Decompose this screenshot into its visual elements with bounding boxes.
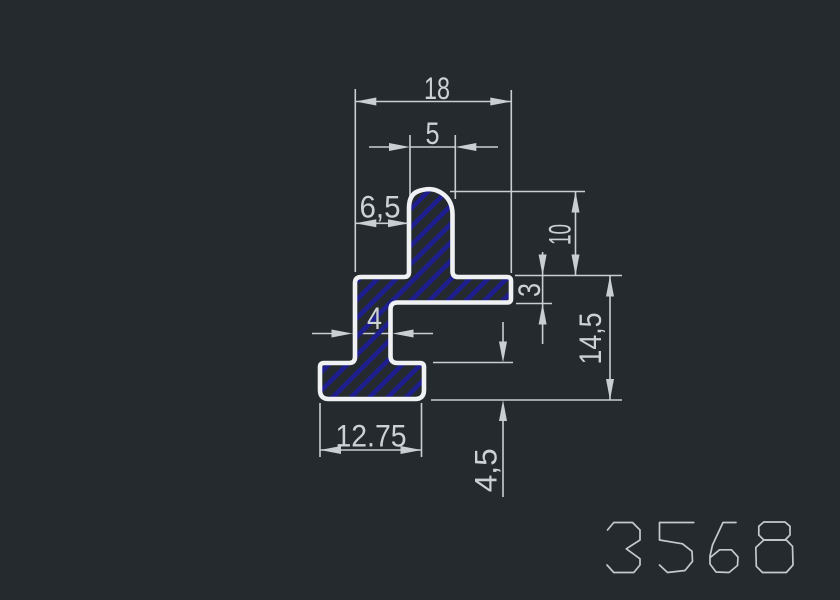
svg-text:4: 4: [367, 300, 382, 336]
svg-text:14,5: 14,5: [572, 313, 608, 365]
svg-text:3: 3: [511, 283, 547, 297]
svg-text:6,5: 6,5: [360, 189, 401, 225]
svg-text:18: 18: [424, 70, 450, 106]
svg-text:5: 5: [426, 115, 440, 151]
svg-text:10: 10: [542, 224, 578, 245]
svg-text:12.75: 12.75: [336, 418, 407, 454]
svg-text:4,5: 4,5: [467, 448, 503, 492]
